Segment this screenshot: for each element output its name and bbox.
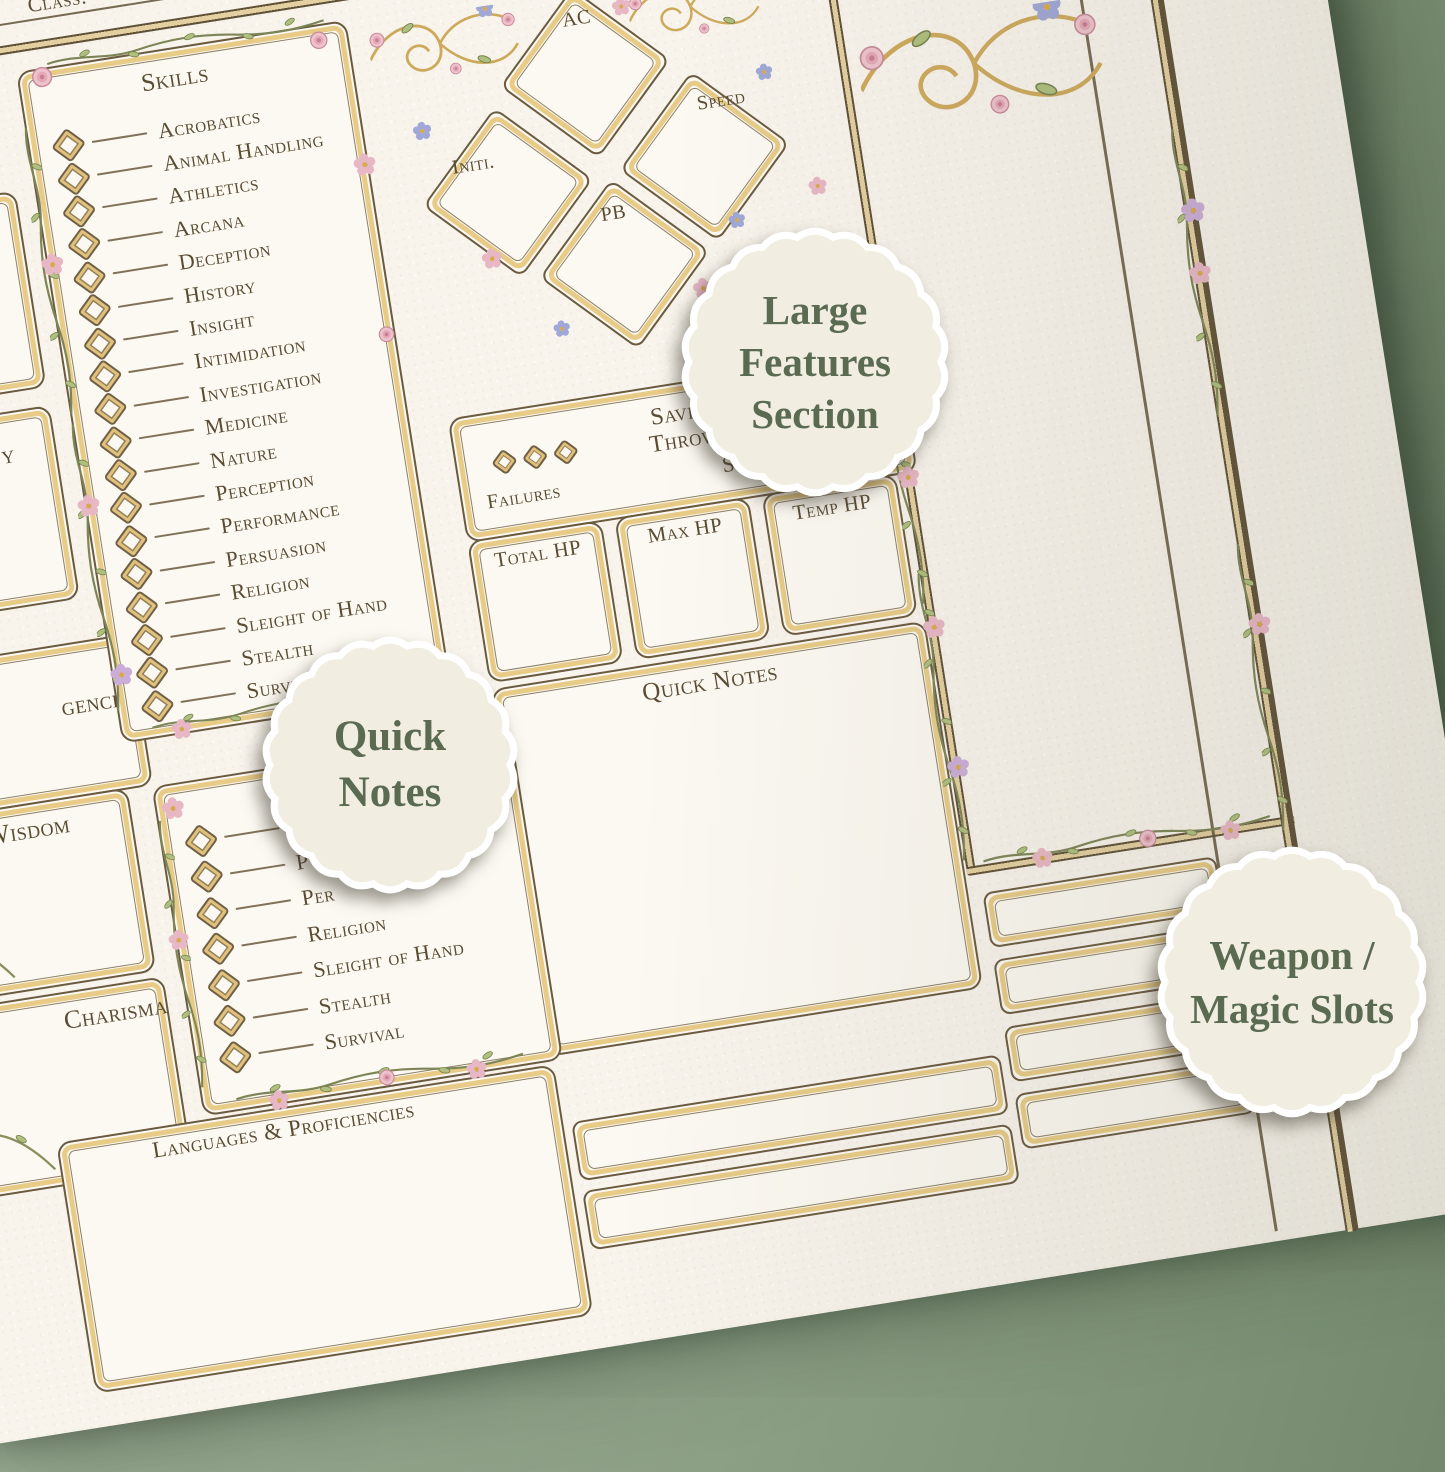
- badge-large-features-section: Large Features Section: [665, 212, 965, 512]
- skill-underline: [175, 660, 231, 671]
- skill-underline: [160, 561, 216, 572]
- badge-line: Large: [763, 284, 868, 336]
- ability-label: Wisdom: [0, 809, 72, 852]
- skill-label: Survival: [323, 1018, 407, 1056]
- skill-underline: [92, 132, 148, 143]
- skill-underline: [253, 1008, 309, 1019]
- vine-arch-icon: [0, 917, 22, 1004]
- skill-underline: [139, 429, 195, 440]
- skill-underline: [170, 627, 226, 638]
- skill-underline: [133, 396, 189, 407]
- skill-underline: [113, 264, 169, 275]
- hp-box-label: Max HP: [618, 508, 752, 553]
- failure-diamond-icon: [552, 439, 579, 466]
- badge-line: Notes: [339, 765, 442, 821]
- skill-underline: [128, 363, 184, 374]
- failure-diamond-icon: [522, 444, 549, 471]
- skill-underline: [241, 936, 297, 947]
- blue-flower-icon: [552, 319, 573, 340]
- skill-underline: [247, 972, 303, 983]
- product-screenshot: { "sheet": { "class_label": "Class:", "s…: [0, 0, 1445, 1156]
- skill-underline: [165, 594, 221, 605]
- badge-line: Features: [739, 336, 891, 388]
- pink-flower-icon: [610, 0, 633, 18]
- ability-label: Charisma: [62, 990, 170, 1036]
- failure-diamond-icon: [491, 449, 518, 476]
- skill-underline: [149, 495, 205, 506]
- skill-underline: [118, 297, 174, 308]
- hp-box-label: Total HP: [471, 531, 605, 576]
- badge-line: Weapon /: [1209, 928, 1374, 982]
- skill-underline: [102, 198, 158, 209]
- pink-flower-icon: [806, 175, 829, 198]
- skill-underline: [123, 330, 179, 341]
- vine-arch-icon: [0, 1109, 63, 1196]
- ability-box-partial-dexterity: y: [0, 405, 80, 658]
- badge-line: Magic Slots: [1190, 982, 1394, 1036]
- badge-quick-notes: Quick Notes: [240, 615, 540, 915]
- badge-line: Section: [751, 388, 879, 440]
- badge-weapon-magic-slots: Weapon / Magic Slots: [1142, 832, 1442, 1132]
- skill-underline: [154, 528, 210, 539]
- skill-underline: [107, 231, 163, 242]
- skill-underline: [97, 165, 153, 176]
- skill-underline: [180, 693, 236, 704]
- languages-title: Languages & Proficiencies: [150, 1097, 416, 1164]
- skill-label: Stealth: [317, 983, 393, 1020]
- ability-label-fragment: y: [0, 439, 17, 471]
- hp-box: Max HP: [614, 497, 771, 661]
- failures-label: Failures: [485, 480, 562, 514]
- badge-line: Quick: [334, 709, 446, 765]
- skill-underline: [258, 1044, 314, 1055]
- blue-flower-icon: [411, 120, 434, 143]
- skill-underline: [144, 462, 200, 473]
- blue-flower-icon: [754, 62, 775, 83]
